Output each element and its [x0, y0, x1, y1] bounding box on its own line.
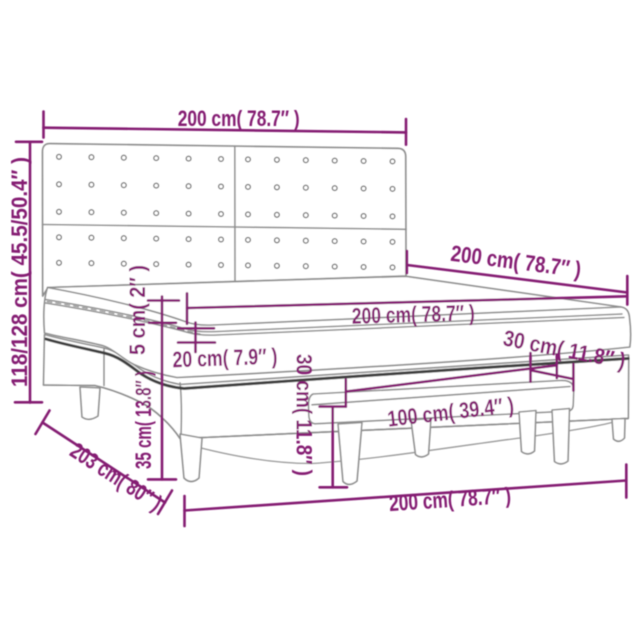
svg-text:200 cm( 78.7″ ): 200 cm( 78.7″ ): [178, 106, 300, 131]
svg-text:200 cm( 78.7″ ): 200 cm( 78.7″ ): [351, 300, 475, 328]
svg-text:30 cm( 11.8″ ): 30 cm( 11.8″ ): [292, 354, 317, 476]
svg-text:20 cm( 7.9″ ): 20 cm( 7.9″ ): [172, 344, 278, 373]
svg-text:5 cm( 2″ ): 5 cm( 2″ ): [125, 265, 150, 355]
svg-text:35 cm( 13.8″ ): 35 cm( 13.8″ ): [131, 371, 156, 469]
svg-text:118/128 cm( 45.5/50.4″ ): 118/128 cm( 45.5/50.4″ ): [7, 157, 32, 387]
